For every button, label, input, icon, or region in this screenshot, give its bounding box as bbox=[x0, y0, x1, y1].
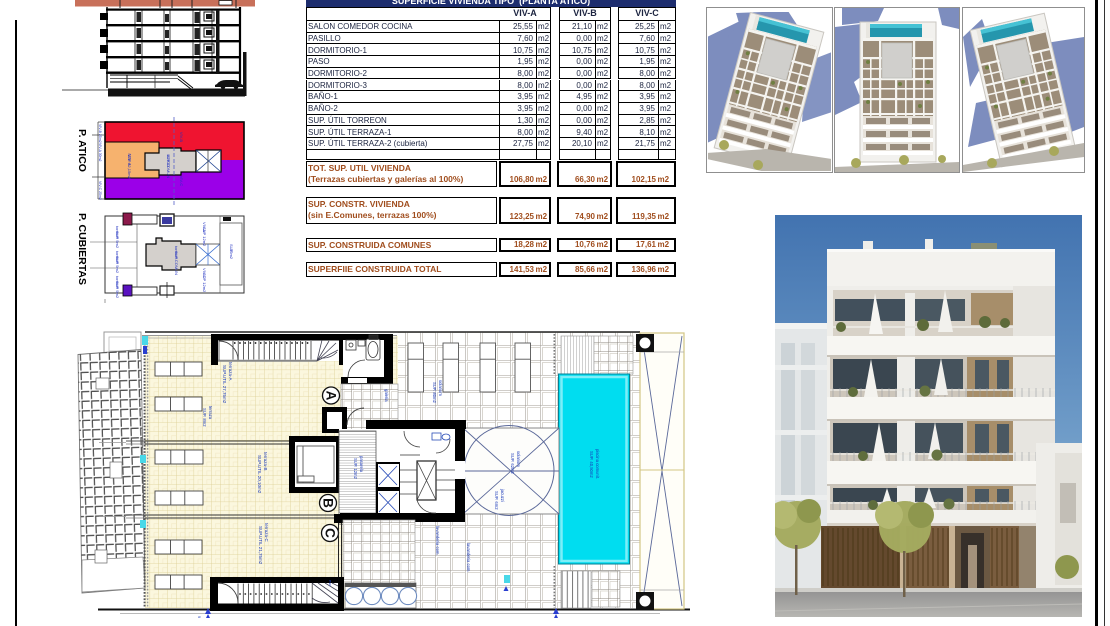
svg-text:VIV-A 30m2: VIV-A 30m2 bbox=[98, 143, 102, 162]
svg-text:terraza-B: terraza-B bbox=[263, 452, 268, 471]
svg-text:solarium: solarium bbox=[438, 380, 443, 396]
svg-text:SUP 9m2: SUP 9m2 bbox=[115, 231, 120, 249]
svg-text:terraza: terraza bbox=[208, 406, 213, 420]
svg-text:SUP. 40,50m2: SUP. 40,50m2 bbox=[589, 451, 594, 478]
svg-text:VIV-C 25m2: VIV-C 25m2 bbox=[98, 181, 102, 200]
svg-text:SUP.UTIL 27,75m2: SUP.UTIL 27,75m2 bbox=[222, 365, 227, 404]
svg-text:B: B bbox=[321, 498, 336, 508]
svg-text:SUP. 8m2: SUP. 8m2 bbox=[202, 408, 207, 427]
svg-text:VIV-B 25m2: VIV-B 25m2 bbox=[98, 124, 102, 143]
svg-text:SUP.COMUN: SUP.COMUN bbox=[166, 154, 171, 178]
svg-text:SUP. 6m2: SUP. 6m2 bbox=[494, 491, 499, 510]
svg-text:SUP 9m2: SUP 9m2 bbox=[115, 256, 120, 274]
svg-text:9.85: 9.85 bbox=[197, 616, 202, 618]
svg-text:galeria: galeria bbox=[384, 389, 389, 402]
svg-text:solarium: solarium bbox=[516, 451, 521, 467]
svg-text:SUP. 42,15m2: SUP. 42,15m2 bbox=[127, 153, 132, 179]
svg-text:12m2: 12m2 bbox=[229, 249, 234, 260]
svg-text:SUP 12m2: SUP 12m2 bbox=[202, 227, 207, 247]
svg-text:pasarela: pasarela bbox=[359, 456, 364, 473]
svg-text:SUP. 12m2: SUP. 12m2 bbox=[353, 458, 358, 480]
svg-text:SUP 9m2: SUP 9m2 bbox=[115, 281, 120, 299]
svg-text:VIV-B: VIV-B bbox=[179, 132, 184, 143]
svg-text:esc: esc bbox=[328, 580, 333, 586]
svg-text:terraza-C: terraza-C bbox=[264, 523, 269, 543]
svg-text:SUP.COMUN: SUP.COMUN bbox=[174, 251, 179, 275]
svg-text:lavanderia com.: lavanderia com. bbox=[466, 543, 471, 573]
svg-text:C: C bbox=[323, 528, 338, 538]
svg-text:A: A bbox=[324, 391, 339, 401]
svg-text:SUP. 80m2: SUP. 80m2 bbox=[432, 382, 437, 404]
svg-text:VIV-C: VIV-C bbox=[179, 176, 184, 187]
svg-text:SUP 12m2: SUP 12m2 bbox=[202, 273, 207, 293]
svg-text:terraza-A: terraza-A bbox=[228, 362, 233, 381]
svg-text:jacuzzi: jacuzzi bbox=[500, 488, 505, 502]
svg-text:SUP. 62m2: SUP. 62m2 bbox=[510, 453, 515, 475]
svg-text:SUP.UTIL 21,75m2: SUP.UTIL 21,75m2 bbox=[258, 526, 263, 565]
svg-text:piscina comunit.: piscina comunit. bbox=[595, 449, 600, 479]
svg-text:lavanderia com.: lavanderia com. bbox=[435, 526, 440, 556]
svg-text:SUP.UTIL 20,10m2: SUP.UTIL 20,10m2 bbox=[257, 455, 262, 494]
